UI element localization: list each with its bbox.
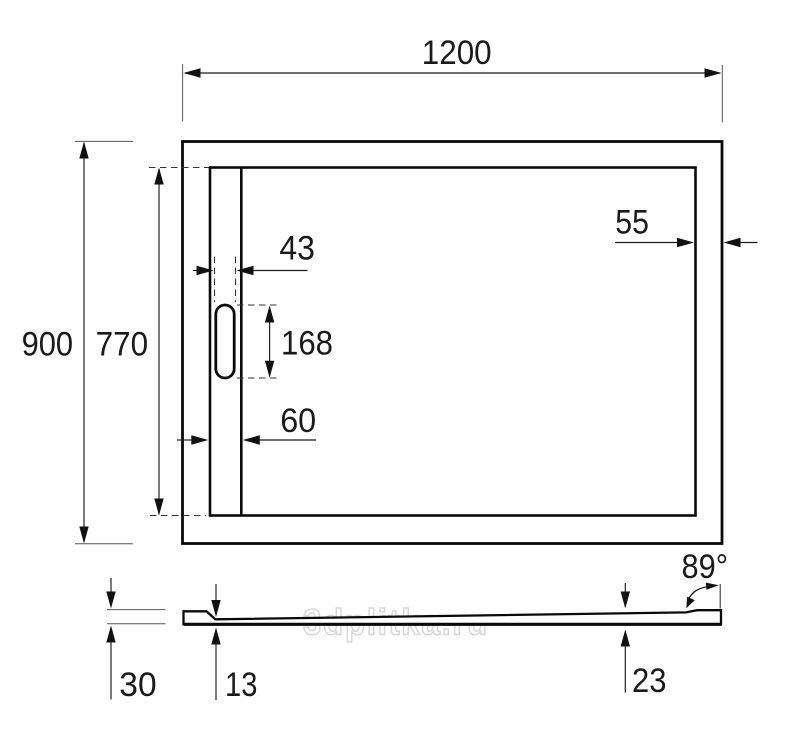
svg-text:30: 30 xyxy=(119,666,156,704)
svg-text:60: 60 xyxy=(280,402,316,440)
svg-text:13: 13 xyxy=(225,666,257,704)
svg-text:770: 770 xyxy=(96,326,149,364)
svg-text:55: 55 xyxy=(615,204,649,242)
svg-text:900: 900 xyxy=(22,326,74,364)
svg-text:43: 43 xyxy=(279,229,315,267)
svg-text:1200: 1200 xyxy=(422,34,492,72)
svg-text:168: 168 xyxy=(281,325,333,363)
svg-text:89°: 89° xyxy=(682,548,729,586)
svg-text:23: 23 xyxy=(632,662,667,700)
